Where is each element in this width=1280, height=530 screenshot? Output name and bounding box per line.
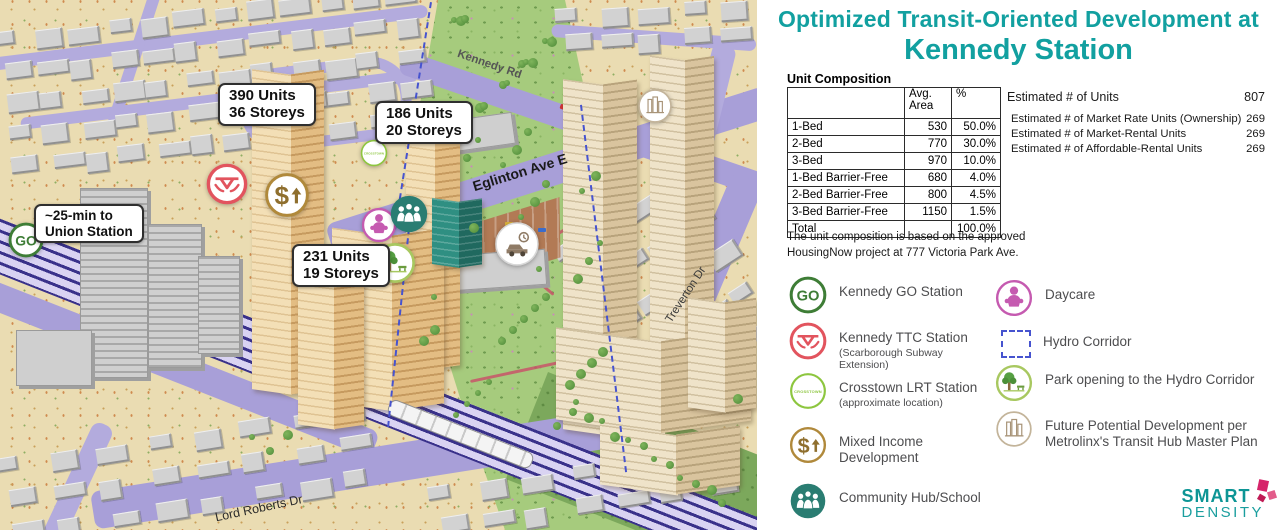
row-pct: 30.0% (952, 136, 1001, 153)
legend-sublabel: (approximate location) (839, 397, 977, 409)
unit-composition-heading: Unit Composition (787, 72, 891, 86)
header-blank (788, 88, 905, 119)
house (149, 433, 173, 450)
house (215, 7, 239, 24)
legend-item-hydro-corridor: Hydro Corridor (995, 324, 1132, 358)
table-row: 3-Bed Barrier-Free11501.5% (788, 204, 1001, 221)
house (565, 32, 593, 51)
row-pct: 50.0% (952, 119, 1001, 136)
house (602, 7, 630, 29)
legend-label: Crosstown LRT Station (approximate locat… (839, 372, 977, 409)
label-line: 20 Storeys (386, 122, 462, 139)
go-station-icon (789, 276, 827, 314)
tree (733, 394, 743, 404)
house (50, 449, 80, 473)
house (217, 38, 246, 58)
house (57, 516, 81, 530)
house (67, 26, 101, 47)
house (521, 474, 555, 496)
estimate-row: Estimated # of Units 807 (1007, 90, 1265, 104)
row-area: 530 (905, 119, 952, 136)
tree (430, 325, 440, 335)
house (145, 80, 169, 100)
legend-item-daycare: Daycare (995, 279, 1095, 317)
house (146, 111, 175, 134)
house (601, 33, 634, 49)
legend-label: Kennedy TTC Station (Scarborough Subway … (839, 322, 989, 371)
label-186-units: 186 Units 20 Storeys (375, 101, 473, 144)
mixed-income-icon (789, 426, 827, 464)
daycare-icon (995, 279, 1033, 317)
table-row: 3-Bed97010.0% (788, 153, 1001, 170)
parking-icon (494, 221, 540, 267)
legend-item-mixed-income: Mixed Income Development (789, 426, 959, 465)
house (483, 509, 517, 528)
row-area: 1150 (905, 204, 952, 221)
legend-label-text: Daycare (1045, 287, 1095, 302)
legend-item-crosstown-lrt: Crosstown LRT Station (approximate locat… (789, 372, 977, 410)
label-line: 186 Units (386, 105, 453, 122)
unit-composition-table: Avg. Area % 1-Bed53050.0% 2-Bed77030.0% … (787, 87, 1001, 238)
existing-tower (198, 256, 240, 354)
row-label: 1-Bed Barrier-Free (788, 170, 905, 187)
row-area: 800 (905, 187, 952, 204)
house (241, 451, 266, 474)
legend-label-text: Crosstown LRT Station (839, 380, 977, 395)
label-line: 390 Units (229, 87, 296, 104)
house (328, 122, 357, 142)
tree (625, 437, 631, 443)
house (152, 466, 181, 487)
tree (504, 80, 510, 86)
house (8, 124, 32, 141)
tree (576, 369, 586, 379)
house (340, 433, 374, 452)
house (720, 1, 748, 23)
house (554, 8, 577, 24)
house (5, 60, 34, 80)
tree (569, 408, 577, 416)
table-row: 1-Bed Barrier-Free6804.0% (788, 170, 1001, 187)
label-line: 36 Storeys (229, 104, 305, 121)
tree (585, 257, 593, 265)
tree (531, 304, 539, 312)
estimate-label: Estimated # of Units (1007, 90, 1119, 104)
house (35, 27, 64, 50)
site-map: 390 Units 36 Storeys 186 Units 20 Storey… (0, 0, 757, 530)
legend-label-text: Mixed Income Development (839, 434, 923, 465)
tree (542, 293, 550, 301)
house (174, 41, 198, 64)
community-hub-building (432, 200, 482, 266)
estimate-label: Estimated # of Market Rate Units (Owners… (1011, 113, 1241, 125)
park-icon (995, 364, 1033, 402)
house (296, 445, 325, 466)
tree (640, 442, 648, 450)
estimate-row: Estimated # of Affordable-Rental Units 2… (1007, 143, 1265, 155)
house (116, 144, 145, 164)
house (576, 494, 605, 515)
tree (475, 390, 481, 396)
house (114, 113, 138, 130)
tree (480, 102, 488, 110)
house (524, 507, 549, 530)
legend-label-text: Hydro Corridor (1043, 334, 1132, 349)
house (684, 0, 707, 16)
legend-label: Mixed Income Development (839, 426, 959, 465)
house (83, 119, 117, 140)
tree (524, 128, 532, 136)
legend-label: Daycare (1045, 279, 1095, 303)
house (187, 70, 216, 87)
label-line: 231 Units (303, 248, 370, 265)
tree (692, 480, 700, 488)
tree (419, 336, 429, 346)
house (0, 456, 18, 473)
ttc-station-icon (789, 322, 827, 360)
legend-label: Future Potential Development per Metroli… (1045, 410, 1260, 449)
house (113, 80, 147, 104)
estimate-value: 269 (1246, 113, 1265, 125)
label-line: 19 Storeys (303, 265, 379, 282)
logo-line2: DENSITY (1181, 505, 1264, 522)
tree (453, 412, 459, 418)
row-pct: 1.5% (952, 204, 1001, 221)
tree (718, 499, 726, 507)
house (111, 49, 140, 69)
tree (565, 380, 575, 390)
tree (598, 347, 608, 357)
label-line: Union Station (45, 224, 133, 239)
tree (475, 137, 481, 143)
community-hub-icon (389, 194, 429, 234)
label-390-units: 390 Units 36 Storeys (218, 83, 316, 126)
tree (266, 447, 274, 455)
house (397, 17, 421, 40)
page-title-line2: Kennedy Station (757, 34, 1280, 67)
tree (512, 145, 522, 155)
tree (464, 401, 470, 407)
house (172, 8, 206, 29)
row-label: 2-Bed (788, 136, 905, 153)
house (352, 0, 381, 10)
house (720, 26, 753, 42)
tree (469, 223, 479, 233)
house (0, 30, 16, 47)
house (69, 59, 93, 82)
legend-item-park-opening: Park opening to the Hydro Corridor (995, 364, 1254, 402)
row-area: 680 (905, 170, 952, 187)
house (85, 152, 109, 175)
tree (530, 197, 540, 207)
row-label: 1-Bed (788, 119, 905, 136)
tree (283, 430, 293, 440)
house (7, 91, 41, 115)
tree (547, 37, 557, 47)
house (684, 26, 712, 45)
tree (587, 358, 597, 368)
house (324, 58, 358, 82)
estimate-row: Estimated # of Market Rate Units (Owners… (1007, 113, 1265, 125)
label-231-units: 231 Units 19 Storeys (292, 244, 390, 287)
house (321, 0, 345, 12)
house (356, 51, 380, 71)
house (143, 47, 176, 65)
house (53, 482, 87, 501)
tree (528, 58, 538, 68)
house (9, 486, 38, 507)
house (479, 478, 509, 502)
house (278, 0, 312, 18)
house (95, 444, 129, 466)
house (441, 513, 470, 530)
row-label: 3-Bed Barrier-Free (788, 204, 905, 221)
row-pct: 10.0% (952, 153, 1001, 170)
house (246, 0, 275, 21)
header-avg-area: Avg. Area (905, 88, 952, 119)
header-pct: % (952, 88, 1001, 119)
legend-label-text: Community Hub/School (839, 490, 981, 505)
tree (610, 432, 620, 442)
legend-label: Kennedy GO Station (839, 276, 963, 300)
tree (542, 180, 550, 188)
house (156, 498, 191, 523)
house (222, 133, 251, 153)
estimate-label: Estimated # of Affordable-Rental Units (1011, 143, 1202, 155)
house (248, 29, 281, 47)
tree (666, 461, 674, 469)
house (98, 479, 123, 502)
legend-label: Park opening to the Hydro Corridor (1045, 364, 1254, 388)
table-header-row: Avg. Area % (788, 88, 1001, 119)
tree (553, 422, 561, 430)
future-development-icon (637, 88, 673, 124)
house (637, 34, 660, 55)
existing-tower (148, 224, 202, 368)
estimate-label: Estimated # of Market-Rental Units (1011, 128, 1186, 140)
community-hub-icon (789, 482, 827, 520)
legend-item-future-development: Future Potential Development per Metroli… (995, 410, 1260, 449)
estimate-row: Estimated # of Market-Rental Units 269 (1007, 128, 1265, 140)
legend-label-text: Kennedy TTC Station (839, 330, 968, 345)
legend-label-text: Future Potential Development per Metroli… (1045, 418, 1258, 449)
row-label: 3-Bed (788, 153, 905, 170)
legend-label: Hydro Corridor (1043, 324, 1132, 350)
house (197, 461, 231, 480)
hydro-corridor-icon (1001, 330, 1031, 358)
house (638, 7, 671, 26)
tree (584, 413, 594, 423)
estimates-block: Estimated # of Units 807 Estimated # of … (1007, 90, 1265, 158)
legend-label: Community Hub/School (839, 482, 981, 506)
tree (707, 485, 717, 495)
estimate-value: 807 (1244, 90, 1265, 104)
logo-block (1257, 479, 1269, 492)
house (39, 91, 63, 111)
house (291, 28, 315, 51)
mixed-income-icon (264, 172, 310, 218)
house (354, 18, 387, 36)
house (12, 519, 47, 530)
proposed-tower-231 (298, 262, 364, 427)
existing-building (16, 330, 92, 386)
tree (486, 379, 492, 385)
tree (579, 188, 585, 194)
tree (498, 337, 506, 345)
future-midrise (688, 300, 756, 410)
tree (651, 456, 657, 462)
tree (520, 315, 528, 323)
tree (431, 294, 437, 300)
house (343, 468, 367, 488)
tree (518, 214, 524, 220)
legend-item-ttc-station: Kennedy TTC Station (Scarborough Subway … (789, 322, 989, 371)
page: 390 Units 36 Storeys 186 Units 20 Storey… (0, 0, 1280, 530)
house (53, 152, 86, 170)
house (326, 91, 350, 108)
tree (461, 15, 469, 23)
house (109, 18, 133, 35)
row-area: 770 (905, 136, 952, 153)
tree (573, 399, 579, 405)
house (323, 27, 352, 47)
legend-item-community-hub: Community Hub/School (789, 482, 981, 520)
legend-label-text: Park opening to the Hydro Corridor (1045, 372, 1254, 387)
tree (463, 154, 471, 162)
house (427, 484, 451, 501)
house (159, 141, 192, 159)
house (617, 490, 651, 509)
row-pct: 4.0% (952, 170, 1001, 187)
row-area: 970 (905, 153, 952, 170)
house (112, 510, 141, 528)
legend-sublabel: (Scarborough Subway Extension) (839, 347, 989, 371)
label-line: ~25-min to (45, 208, 113, 223)
house (40, 122, 69, 145)
composition-note: The unit composition is based on the app… (787, 230, 1087, 261)
tree (509, 326, 517, 334)
row-label: 2-Bed Barrier-Free (788, 187, 905, 204)
house (81, 88, 110, 105)
estimate-value: 269 (1246, 143, 1265, 155)
house (37, 58, 70, 76)
house (190, 134, 214, 157)
legend-item-go-station: Kennedy GO Station (789, 276, 963, 314)
table-row: 2-Bed77030.0% (788, 136, 1001, 153)
row-pct: 4.5% (952, 187, 1001, 204)
smart-density-logo: SMART DENSITY (1181, 487, 1264, 522)
table-row: 2-Bed Barrier-Free8004.5% (788, 187, 1001, 204)
ttc-station-icon (206, 163, 248, 205)
house (384, 0, 418, 7)
page-title-line1: Optimized Transit-Oriented Development a… (757, 6, 1280, 33)
info-panel: Optimized Transit-Oriented Development a… (757, 0, 1280, 530)
tree (591, 171, 601, 181)
house (141, 16, 170, 39)
estimate-value: 269 (1246, 128, 1265, 140)
tree (573, 274, 583, 284)
tree (599, 418, 605, 424)
tree (249, 434, 255, 440)
logo-block (1267, 490, 1277, 500)
future-development-icon (995, 410, 1033, 448)
label-union-station: ~25-min to Union Station (34, 204, 144, 243)
house (573, 463, 597, 480)
table-row: 1-Bed53050.0% (788, 119, 1001, 136)
house (194, 428, 224, 452)
tree (677, 475, 683, 481)
logo-line1: SMART (1181, 487, 1264, 505)
house (10, 155, 39, 175)
legend-label-text: Kennedy GO Station (839, 284, 963, 299)
crosstown-lrt-icon (789, 372, 827, 410)
